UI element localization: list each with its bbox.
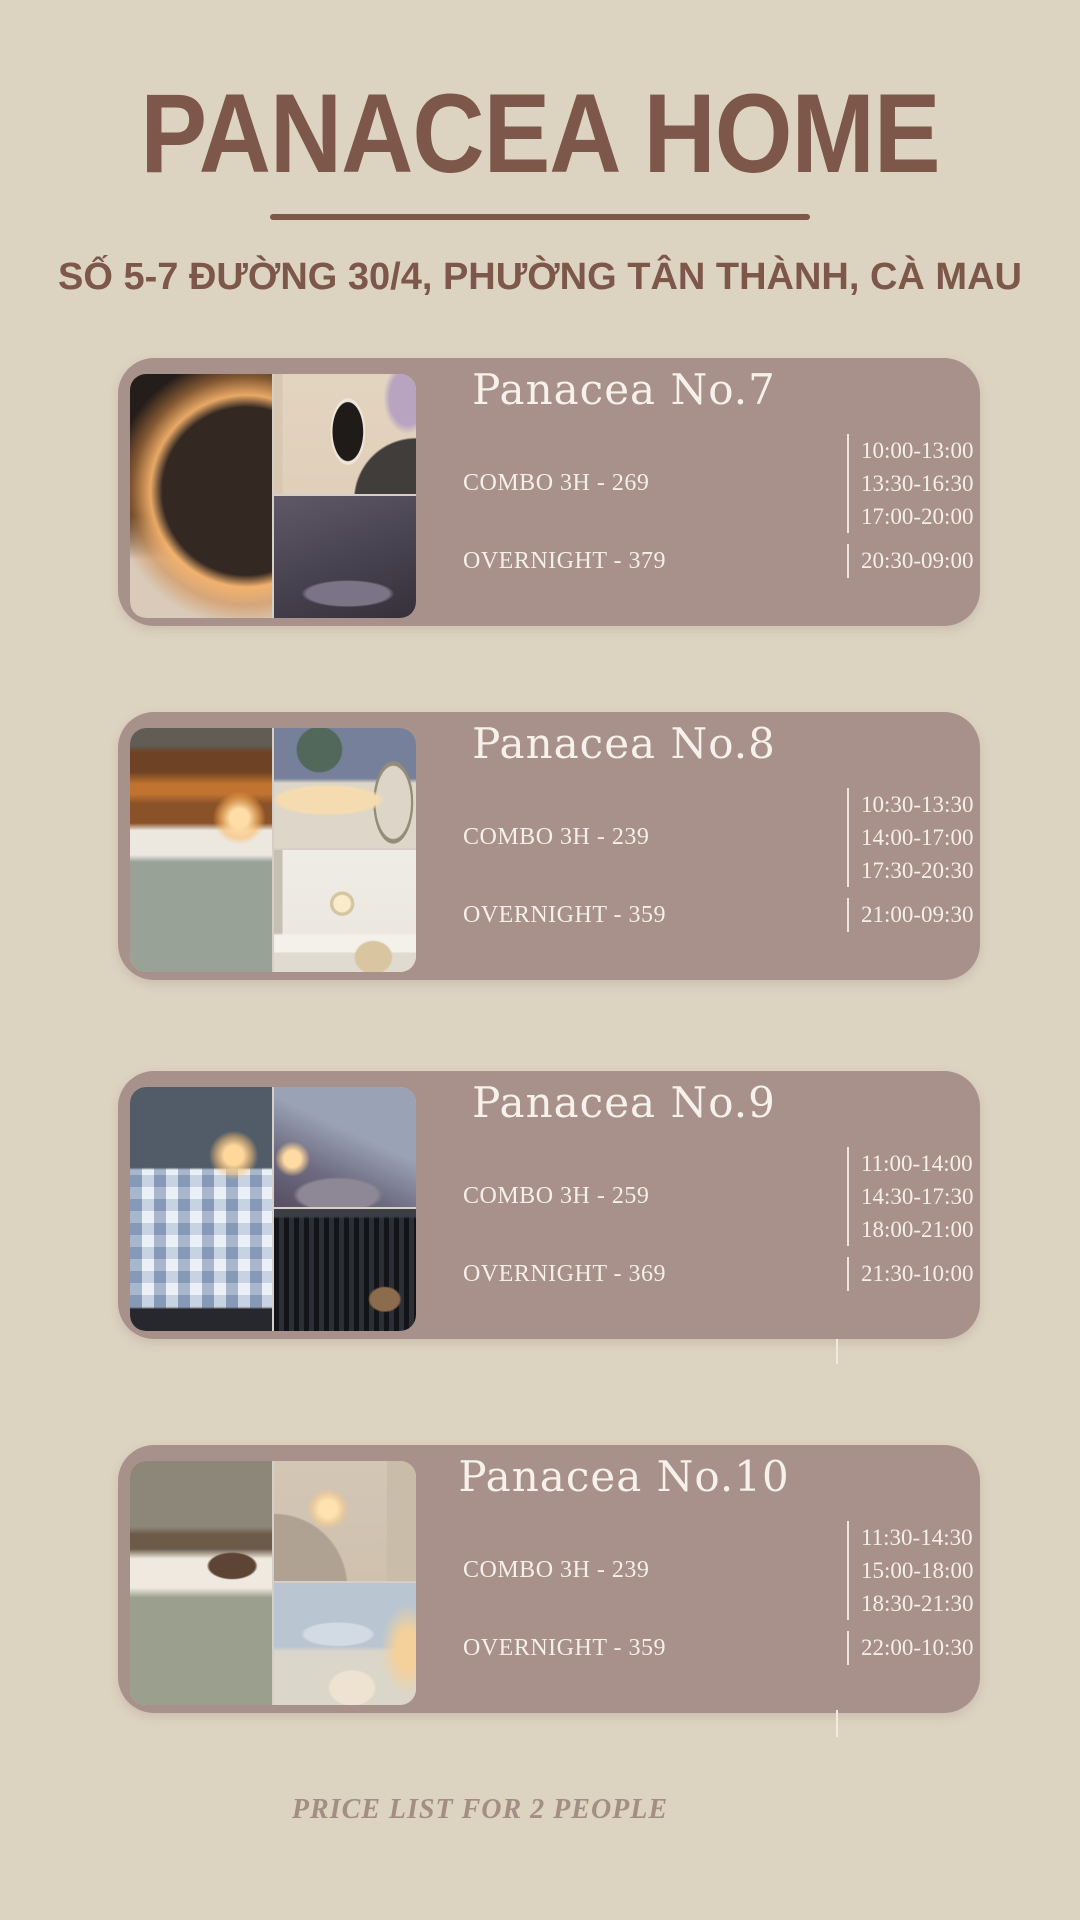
address-line: SỐ 5-7 ĐƯỜNG 30/4, PHƯỜNG TÂN THÀNH, CÀ … <box>0 256 1080 299</box>
room-photo-bottom-right <box>274 496 416 618</box>
time-slot: 10:00-13:00 <box>861 434 973 467</box>
room-card-panacea-no7: Panacea No.7 COMBO 3H - 269 10:00-13:00 … <box>118 358 980 626</box>
time-slot: 10:30-13:30 <box>861 788 973 821</box>
time-slot: 11:30-14:30 <box>861 1521 973 1554</box>
overnight-price-label: OVERNIGHT - 379 <box>463 546 666 576</box>
room-photo-left <box>130 728 272 972</box>
combo-price-label: COMBO 3H - 239 <box>463 1555 649 1585</box>
room-photo-bottom-right <box>274 850 416 972</box>
time-slot: 17:00-20:00 <box>861 500 973 533</box>
time-slot: 18:00-21:00 <box>861 1213 973 1246</box>
page-title: PANACEA HOME <box>0 70 1080 199</box>
time-slot: 14:00-17:00 <box>861 821 973 854</box>
footer-note: PRICE LIST FOR 2 PEOPLE <box>0 1794 960 1826</box>
combo-time-slots: 10:30-13:30 14:00-17:00 17:30-20:30 <box>847 788 973 887</box>
combo-price-label: COMBO 3H - 269 <box>463 468 649 498</box>
combo-time-slots: 11:00-14:00 14:30-17:30 18:00-21:00 <box>847 1147 973 1246</box>
time-slot: 11:00-14:00 <box>861 1147 973 1180</box>
overnight-price-label: OVERNIGHT - 369 <box>463 1259 666 1289</box>
combo-time-slots: 11:30-14:30 15:00-18:00 18:30-21:30 <box>847 1521 973 1620</box>
room-photo-left <box>130 1087 272 1331</box>
room-title: Panacea No.9 <box>374 1078 874 1128</box>
room-title: Panacea No.10 <box>374 1452 874 1502</box>
time-slot: 18:30-21:30 <box>861 1587 973 1620</box>
combo-price-label: COMBO 3H - 259 <box>463 1181 649 1211</box>
room-photo-bottom-right <box>274 1583 416 1705</box>
time-slot: 14:30-17:30 <box>861 1180 973 1213</box>
room-photo-left <box>130 1461 272 1705</box>
overnight-price-label: OVERNIGHT - 359 <box>463 900 666 930</box>
overnight-time-slot: 20:30-09:00 <box>847 544 973 578</box>
time-slot: 13:30-16:30 <box>861 467 973 500</box>
overnight-time-slot: 21:30-10:00 <box>847 1257 973 1291</box>
title-divider <box>270 214 810 220</box>
room-card-panacea-no10: Panacea No.10 COMBO 3H - 239 11:30-14:30… <box>118 1445 980 1713</box>
time-slot: 17:30-20:30 <box>861 854 973 887</box>
room-photo-left <box>130 374 272 618</box>
room-photo-bottom-right <box>274 1209 416 1331</box>
combo-time-slots: 10:00-13:00 13:30-16:30 17:00-20:00 <box>847 434 973 533</box>
room-card-panacea-no9: Panacea No.9 COMBO 3H - 259 11:00-14:00 … <box>118 1071 980 1339</box>
separator-tail-line <box>836 1339 838 1364</box>
overnight-price-label: OVERNIGHT - 359 <box>463 1633 666 1663</box>
combo-price-label: COMBO 3H - 239 <box>463 822 649 852</box>
room-title: Panacea No.8 <box>374 719 874 769</box>
overnight-time-slot: 22:00-10:30 <box>847 1631 973 1665</box>
time-slot: 15:00-18:00 <box>861 1554 973 1587</box>
overnight-time-slot: 21:00-09:30 <box>847 898 973 932</box>
separator-tail-line <box>836 1710 838 1737</box>
price-list-poster: PANACEA HOME SỐ 5-7 ĐƯỜNG 30/4, PHƯỜNG T… <box>0 0 1080 1920</box>
room-card-panacea-no8: Panacea No.8 COMBO 3H - 239 10:30-13:30 … <box>118 712 980 980</box>
room-title: Panacea No.7 <box>374 365 874 415</box>
